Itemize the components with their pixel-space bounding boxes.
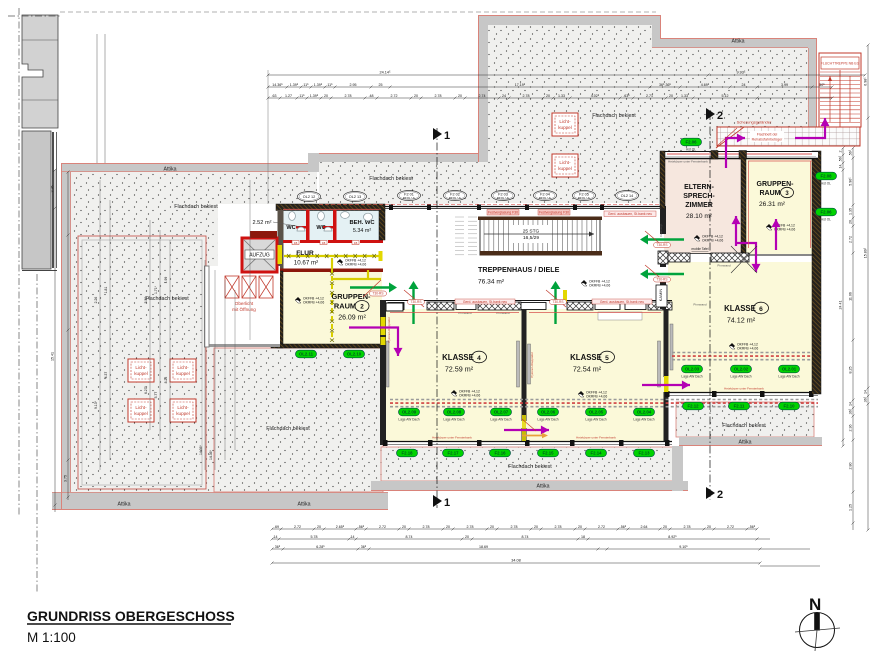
svg-text:KAMIN: KAMIN bbox=[658, 289, 663, 302]
svg-text:TREPPENHAUS / DIELE: TREPPENHAUS / DIELE bbox=[478, 265, 560, 274]
svg-text:36⁵: 36⁵ bbox=[275, 545, 281, 549]
svg-text:Flachbett del: Flachbett del bbox=[757, 133, 778, 137]
svg-text:72.54 m²: 72.54 m² bbox=[573, 365, 602, 374]
svg-text:D8: D8 bbox=[294, 241, 298, 245]
svg-text:9.93⁵: 9.93⁵ bbox=[737, 71, 746, 75]
svg-text:D8: D8 bbox=[322, 241, 326, 245]
svg-text:14.36⁵: 14.36⁵ bbox=[209, 449, 213, 459]
svg-text:2.78: 2.78 bbox=[423, 525, 430, 529]
svg-text:20: 20 bbox=[534, 525, 538, 529]
svg-text:OL2.09: OL2.09 bbox=[402, 410, 417, 415]
svg-text:kuppel: kuppel bbox=[558, 125, 572, 130]
svg-text:kuppel: kuppel bbox=[134, 411, 148, 416]
svg-text:OKRFB +4,06: OKRFB +4,06 bbox=[459, 394, 480, 398]
svg-text:1: 1 bbox=[444, 130, 450, 142]
svg-text:Lage AW Dach: Lage AW Dach bbox=[537, 418, 558, 422]
svg-text:Festverglasung F30: Festverglasung F30 bbox=[488, 211, 518, 215]
svg-text:RAUM: RAUM bbox=[760, 190, 781, 197]
svg-text:OKRFB +4,06: OKRFB +4,06 bbox=[737, 347, 758, 351]
svg-text:T30-RS: T30-RS bbox=[657, 278, 668, 282]
svg-text:11⁵: 11⁵ bbox=[303, 83, 309, 87]
svg-text:1.39⁵: 1.39⁵ bbox=[310, 94, 319, 98]
svg-text:6.28⁵: 6.28⁵ bbox=[316, 545, 325, 549]
svg-text:8.25: 8.25 bbox=[164, 377, 168, 384]
svg-text:Heizkörper unter Fensterbank: Heizkörper unter Fensterbank bbox=[576, 436, 616, 440]
svg-text:KLASSE: KLASSE bbox=[724, 304, 756, 313]
svg-text:OL2.08: OL2.08 bbox=[447, 410, 462, 415]
svg-text:OL2.04: OL2.04 bbox=[637, 410, 652, 415]
svg-text:RFOL UL: RFOL UL bbox=[539, 196, 552, 200]
svg-text:14.36⁵: 14.36⁵ bbox=[272, 83, 283, 87]
svg-text:BEH. WC: BEH. WC bbox=[349, 220, 375, 226]
svg-text:F2.10: F2.10 bbox=[784, 404, 796, 409]
svg-text:Lage AW Dach: Lage AW Dach bbox=[778, 375, 799, 379]
svg-text:Licht-: Licht- bbox=[135, 365, 147, 370]
svg-text:ZIMMER: ZIMMER bbox=[685, 202, 713, 209]
svg-text:14.36⁵: 14.36⁵ bbox=[199, 444, 203, 454]
svg-text:11⁵: 11⁵ bbox=[327, 83, 333, 87]
svg-text:Lage AW Dach: Lage AW Dach bbox=[585, 418, 606, 422]
svg-text:2.72: 2.72 bbox=[379, 525, 386, 529]
svg-text:Lage AW Dach: Lage AW Dach bbox=[730, 375, 751, 379]
svg-text:5.34 m²: 5.34 m² bbox=[353, 228, 371, 234]
svg-text:Gerd. ausbauen, St.bank neu: Gerd. ausbauen, St.bank neu bbox=[608, 212, 652, 216]
svg-text:20: 20 bbox=[707, 525, 711, 529]
svg-text:20: 20 bbox=[546, 94, 550, 98]
svg-text:2: 2 bbox=[717, 489, 723, 501]
svg-text:Festverglasung F30: Festverglasung F30 bbox=[539, 211, 569, 215]
svg-text:8.74: 8.74 bbox=[522, 535, 529, 539]
svg-text:M 1:100: M 1:100 bbox=[27, 630, 76, 645]
svg-text:8.92⁵: 8.92⁵ bbox=[668, 535, 677, 539]
svg-text:N: N bbox=[809, 595, 821, 614]
svg-text:18: 18 bbox=[581, 535, 585, 539]
svg-text:9.13⁵: 9.13⁵ bbox=[94, 400, 98, 409]
svg-text:.56⁵: .56⁵ bbox=[358, 525, 365, 529]
svg-text:3.99: 3.99 bbox=[781, 83, 788, 87]
svg-text:RFOL UL: RFOL UL bbox=[403, 196, 416, 200]
svg-text:Flachdach bekiest: Flachdach bekiest bbox=[722, 423, 766, 429]
svg-text:RFOL UL: RFOL UL bbox=[449, 196, 462, 200]
svg-text:T30-RS: T30-RS bbox=[657, 243, 668, 247]
svg-text:72.59 m²: 72.59 m² bbox=[445, 365, 474, 374]
svg-text:.63: .63 bbox=[272, 94, 277, 98]
svg-text:11⁵: 11⁵ bbox=[299, 94, 305, 98]
svg-text:4.02⁵: 4.02⁵ bbox=[591, 94, 600, 98]
svg-text:2.26: 2.26 bbox=[51, 186, 55, 193]
svg-text:20: 20 bbox=[324, 94, 328, 98]
svg-text:18.69: 18.69 bbox=[479, 545, 488, 549]
svg-text:16,5/29: 16,5/29 bbox=[523, 235, 539, 241]
svg-text:F2.08: F2.08 bbox=[821, 174, 833, 179]
svg-text:6: 6 bbox=[759, 306, 763, 313]
svg-text:Flachdach bekiest: Flachdach bekiest bbox=[266, 426, 310, 432]
svg-text:Pinnwand: Pinnwand bbox=[458, 311, 472, 315]
svg-text:2.65⁵: 2.65⁵ bbox=[336, 525, 345, 529]
svg-text:Oberlicht: Oberlicht bbox=[235, 301, 254, 306]
svg-text:1.99: 1.99 bbox=[164, 277, 168, 284]
svg-text:15.89⁵: 15.89⁵ bbox=[864, 247, 868, 258]
svg-text:6.98⁵: 6.98⁵ bbox=[864, 77, 868, 86]
svg-text:Pinnwand: Pinnwand bbox=[717, 264, 731, 268]
svg-text:1.71⁵: 1.71⁵ bbox=[154, 285, 158, 294]
svg-text:20: 20 bbox=[317, 525, 321, 529]
svg-text:2.95: 2.95 bbox=[350, 83, 357, 87]
svg-text:F2.17: F2.17 bbox=[448, 451, 460, 456]
svg-text:OL2 13: OL2 13 bbox=[349, 195, 361, 199]
svg-text:5.50: 5.50 bbox=[144, 297, 148, 304]
svg-text:15.41: 15.41 bbox=[51, 352, 55, 361]
svg-text:Pinnwand: Pinnwand bbox=[693, 303, 707, 307]
svg-text:OL2 14: OL2 14 bbox=[621, 194, 633, 198]
svg-text:Pylonen-Klapptafel: Pylonen-Klapptafel bbox=[530, 352, 534, 378]
svg-text:SPRECH-: SPRECH- bbox=[683, 193, 715, 200]
svg-text:Heizkörper unter Fensterbank: Heizkörper unter Fensterbank bbox=[432, 436, 472, 440]
svg-text:KLASSE: KLASSE bbox=[442, 353, 474, 362]
svg-text:2.78: 2.78 bbox=[435, 94, 442, 98]
svg-text:F2.06: F2.06 bbox=[686, 140, 698, 145]
svg-text:Scherungsgeländer: Scherungsgeländer bbox=[737, 120, 772, 125]
svg-text:Licht-: Licht- bbox=[559, 119, 571, 124]
svg-text:2.72: 2.72 bbox=[727, 525, 734, 529]
svg-text:1.39⁵: 1.39⁵ bbox=[290, 83, 299, 87]
svg-text:14: 14 bbox=[839, 165, 843, 169]
svg-text:8.74: 8.74 bbox=[406, 535, 413, 539]
svg-text:F2.13: F2.13 bbox=[639, 451, 651, 456]
svg-text:Gerd. ausbauen, St.bank neu: Gerd. ausbauen, St.bank neu bbox=[463, 300, 507, 304]
svg-text:OL2.03: OL2.03 bbox=[685, 367, 700, 372]
svg-text:.56⁵: .56⁵ bbox=[749, 525, 756, 529]
svg-text:2.72: 2.72 bbox=[391, 94, 398, 98]
svg-text:OKRFB +4,06: OKRFB +4,06 bbox=[774, 228, 795, 232]
svg-text:1.39⁵: 1.39⁵ bbox=[314, 83, 323, 87]
svg-text:5.12: 5.12 bbox=[722, 94, 729, 98]
svg-text:11.06: 11.06 bbox=[849, 292, 853, 301]
svg-text:20: 20 bbox=[578, 525, 582, 529]
svg-text:Flachdach bekiest: Flachdach bekiest bbox=[369, 176, 413, 182]
svg-text:.48: .48 bbox=[369, 94, 374, 98]
svg-text:24: 24 bbox=[502, 94, 506, 98]
svg-text:24: 24 bbox=[742, 83, 746, 87]
svg-text:AUFZUG: AUFZUG bbox=[249, 253, 270, 259]
svg-text:.36⁵: .36⁵ bbox=[864, 396, 868, 403]
svg-text:Flachdach bekiest: Flachdach bekiest bbox=[145, 296, 189, 302]
svg-text:GRUNDRISS OBERGESCHOSS: GRUNDRISS OBERGESCHOSS bbox=[27, 608, 235, 624]
svg-text:Attika: Attika bbox=[732, 39, 745, 45]
svg-text:34.08: 34.08 bbox=[511, 559, 521, 563]
svg-text:14: 14 bbox=[864, 390, 868, 394]
svg-text:Licht-: Licht- bbox=[177, 405, 189, 410]
svg-text:OL2.02: OL2.02 bbox=[734, 367, 749, 372]
svg-text:5: 5 bbox=[605, 355, 609, 362]
svg-text:Attika: Attika bbox=[739, 440, 752, 446]
svg-text:F2.11: F2.11 bbox=[734, 404, 745, 409]
svg-text:36⁵: 36⁵ bbox=[361, 545, 367, 549]
svg-text:14: 14 bbox=[849, 402, 853, 406]
svg-text:.56⁵: .56⁵ bbox=[620, 525, 627, 529]
svg-text:1.35: 1.35 bbox=[849, 208, 853, 215]
svg-text:20: 20 bbox=[663, 525, 667, 529]
svg-text:OL2.07: OL2.07 bbox=[494, 410, 509, 415]
svg-text:1.33: 1.33 bbox=[681, 94, 688, 98]
svg-text:28.10 m²: 28.10 m² bbox=[686, 213, 713, 220]
svg-text:OL2.05: OL2.05 bbox=[589, 410, 604, 415]
svg-text:OKRFB +4,06: OKRFB +4,06 bbox=[303, 301, 324, 305]
svg-text:T30-RS: T30-RS bbox=[411, 300, 422, 304]
svg-text:1.25: 1.25 bbox=[849, 504, 853, 511]
svg-text:OL2.11: OL2.11 bbox=[299, 352, 314, 357]
svg-text:Lage AW Dach: Lage AW Dach bbox=[443, 418, 464, 422]
svg-text:2.72: 2.72 bbox=[849, 236, 853, 243]
svg-text:Rehabsfahrbetüger: Rehabsfahrbetüger bbox=[752, 138, 784, 142]
svg-text:Gerd. ausbauen, St.bank neu: Gerd. ausbauen, St.bank neu bbox=[600, 300, 644, 304]
svg-text:25: 25 bbox=[379, 83, 383, 87]
svg-text:26.31 m²: 26.31 m² bbox=[759, 201, 786, 208]
svg-text:Flachdach bekiest: Flachdach bekiest bbox=[592, 113, 636, 119]
svg-text:20: 20 bbox=[414, 94, 418, 98]
svg-text:kuppel: kuppel bbox=[558, 166, 572, 171]
svg-text:F2.14: F2.14 bbox=[591, 451, 603, 456]
svg-text:Heizkörper unter Fensterbank: Heizkörper unter Fensterbank bbox=[668, 160, 708, 164]
svg-text:2.36: 2.36 bbox=[849, 425, 853, 432]
svg-text:2.78: 2.78 bbox=[523, 94, 530, 98]
svg-text:2.71: 2.71 bbox=[646, 94, 653, 98]
svg-text:4.69⁵: 4.69⁵ bbox=[701, 83, 710, 87]
svg-text:26.09 m²: 26.09 m² bbox=[338, 315, 366, 322]
svg-text:T30-RS: T30-RS bbox=[553, 300, 564, 304]
svg-text:1.81: 1.81 bbox=[104, 287, 108, 294]
svg-text:OKRFB +4,06: OKRFB +4,06 bbox=[702, 239, 723, 243]
svg-text:36⁵,36⁵: 36⁵,36⁵ bbox=[659, 83, 671, 87]
svg-text:.69: .69 bbox=[274, 525, 279, 529]
svg-text:2.78: 2.78 bbox=[467, 525, 474, 529]
svg-text:Attika: Attika bbox=[164, 166, 177, 172]
svg-text:FLUCHTTREPPE NB EG: FLUCHTTREPPE NB EG bbox=[821, 62, 860, 66]
svg-text:25 STG: 25 STG bbox=[523, 229, 540, 235]
svg-text:RAUM: RAUM bbox=[334, 302, 356, 311]
svg-text:2: 2 bbox=[839, 151, 843, 153]
svg-text:50⁵: 50⁵ bbox=[819, 83, 825, 87]
svg-text:Festvergl.: Festvergl. bbox=[659, 223, 663, 236]
svg-text:kuppel: kuppel bbox=[176, 371, 190, 376]
svg-text:20: 20 bbox=[490, 525, 494, 529]
svg-text:Lage AW Dach: Lage AW Dach bbox=[490, 418, 511, 422]
svg-text:2.78: 2.78 bbox=[684, 525, 691, 529]
svg-text:17.19⁵: 17.19⁵ bbox=[515, 83, 526, 87]
svg-text:Attika: Attika bbox=[537, 484, 550, 490]
svg-text:10.67 m²: 10.67 m² bbox=[294, 260, 318, 267]
svg-text:9.10⁵: 9.10⁵ bbox=[679, 545, 688, 549]
svg-text:6.27⁵: 6.27⁵ bbox=[144, 385, 148, 394]
svg-text:OKRFB +4,06: OKRFB +4,06 bbox=[345, 263, 366, 267]
svg-text:OKRFB +4,06: OKRFB +4,06 bbox=[586, 395, 607, 399]
svg-text:20: 20 bbox=[465, 535, 469, 539]
svg-text:kuppel: kuppel bbox=[176, 411, 190, 416]
svg-text:Hst OL: Hst OL bbox=[821, 182, 831, 186]
svg-text:5.78: 5.78 bbox=[311, 535, 318, 539]
svg-text:Licht-: Licht- bbox=[177, 365, 189, 370]
svg-text:2: 2 bbox=[360, 304, 364, 311]
svg-text:5.96⁵: 5.96⁵ bbox=[849, 177, 853, 186]
svg-text:2.64: 2.64 bbox=[641, 525, 648, 529]
svg-text:F2.12: F2.12 bbox=[688, 404, 700, 409]
svg-text:Hst OL: Hst OL bbox=[686, 148, 696, 152]
svg-text:4: 4 bbox=[477, 355, 481, 362]
svg-text:Lage AW Dach: Lage AW Dach bbox=[398, 418, 419, 422]
svg-text:5.77: 5.77 bbox=[154, 392, 158, 399]
svg-text:OL2.06: OL2.06 bbox=[541, 410, 556, 415]
svg-text:Lage AW Dach: Lage AW Dach bbox=[633, 418, 654, 422]
svg-text:.63⁵: .63⁵ bbox=[623, 94, 630, 98]
svg-text:20: 20 bbox=[402, 525, 406, 529]
svg-text:mit Öffnung: mit Öffnung bbox=[232, 306, 256, 312]
svg-text:2.72: 2.72 bbox=[598, 525, 605, 529]
svg-text:OKRFB +4,06: OKRFB +4,06 bbox=[589, 284, 610, 288]
svg-text:RFOL UL: RFOL UL bbox=[497, 196, 510, 200]
svg-text:F2.15: F2.15 bbox=[543, 451, 555, 456]
svg-text:2.78: 2.78 bbox=[511, 525, 518, 529]
svg-text:Pinnwand: Pinnwand bbox=[496, 311, 510, 315]
svg-text:Licht-: Licht- bbox=[559, 160, 571, 165]
svg-text:T30-RS: T30-RS bbox=[373, 292, 384, 296]
svg-text:Licht-: Licht- bbox=[135, 405, 147, 410]
svg-text:F2.06: F2.06 bbox=[821, 210, 833, 215]
svg-text:2.78: 2.78 bbox=[345, 94, 352, 98]
svg-text:4.37: 4.37 bbox=[104, 372, 108, 379]
svg-text:OL2.10: OL2.10 bbox=[347, 352, 362, 357]
svg-text:.36⁵: .36⁵ bbox=[849, 408, 853, 415]
svg-text:20: 20 bbox=[849, 220, 853, 224]
svg-text:mobile Tafel: mobile Tafel bbox=[692, 247, 709, 251]
svg-text:KLASSE: KLASSE bbox=[570, 353, 602, 362]
svg-text:F2.16: F2.16 bbox=[495, 451, 507, 456]
svg-text:Flachdach bekiest: Flachdach bekiest bbox=[508, 464, 552, 470]
svg-text:24.14⁵: 24.14⁵ bbox=[379, 71, 391, 75]
svg-text:2.74: 2.74 bbox=[479, 94, 486, 98]
svg-text:20: 20 bbox=[458, 94, 462, 98]
svg-text:2: 2 bbox=[717, 110, 723, 122]
svg-text:.56⁵: .56⁵ bbox=[849, 149, 853, 156]
svg-text:1.33: 1.33 bbox=[558, 94, 565, 98]
svg-text:RFOL UL: RFOL UL bbox=[578, 196, 591, 200]
svg-text:24.41: 24.41 bbox=[839, 301, 843, 310]
svg-text:20: 20 bbox=[446, 525, 450, 529]
svg-text:1: 1 bbox=[444, 497, 450, 509]
svg-text:14: 14 bbox=[274, 535, 278, 539]
svg-text:76.34 m²: 76.34 m² bbox=[478, 279, 505, 286]
svg-text:2.78: 2.78 bbox=[555, 525, 562, 529]
svg-text:GRUPPEN-: GRUPPEN- bbox=[331, 292, 371, 301]
svg-text:OL2 12: OL2 12 bbox=[303, 195, 315, 199]
svg-text:Lage AW Dach: Lage AW Dach bbox=[681, 375, 702, 379]
svg-text:2.52 m²: 2.52 m² bbox=[253, 220, 272, 226]
svg-text:20: 20 bbox=[669, 94, 673, 98]
svg-text:2.26: 2.26 bbox=[94, 297, 98, 304]
svg-text:Heizkörper unter Fensterbank: Heizkörper unter Fensterbank bbox=[724, 387, 764, 391]
svg-text:74.12 m²: 74.12 m² bbox=[727, 316, 756, 325]
svg-text:Attika: Attika bbox=[298, 502, 311, 508]
svg-text:.56⁵: .56⁵ bbox=[839, 155, 843, 162]
svg-text:1.27: 1.27 bbox=[285, 94, 292, 98]
svg-text:D8: D8 bbox=[354, 241, 358, 245]
svg-text:Hst OL: Hst OL bbox=[821, 218, 831, 222]
svg-text:OL2.01: OL2.01 bbox=[782, 367, 797, 372]
svg-text:14: 14 bbox=[351, 535, 355, 539]
svg-text:kuppel: kuppel bbox=[134, 371, 148, 376]
svg-text:Attika: Attika bbox=[118, 502, 131, 508]
svg-text:Heizkörper unter Fensterbank: Heizkörper unter Fensterbank bbox=[742, 186, 746, 224]
svg-text:2.72: 2.72 bbox=[294, 525, 301, 529]
svg-text:Flachdach bekiest: Flachdach bekiest bbox=[174, 204, 218, 210]
svg-text:Pylonen-Klapptafel: Pylonen-Klapptafel bbox=[387, 317, 391, 343]
svg-text:3.75: 3.75 bbox=[64, 475, 68, 482]
svg-text:FLUR: FLUR bbox=[296, 250, 314, 257]
svg-text:F2.18: F2.18 bbox=[402, 451, 414, 456]
svg-text:GRUPPEN-: GRUPPEN- bbox=[757, 181, 795, 188]
svg-text:8.25: 8.25 bbox=[849, 367, 853, 374]
svg-text:2.80: 2.80 bbox=[849, 463, 853, 470]
